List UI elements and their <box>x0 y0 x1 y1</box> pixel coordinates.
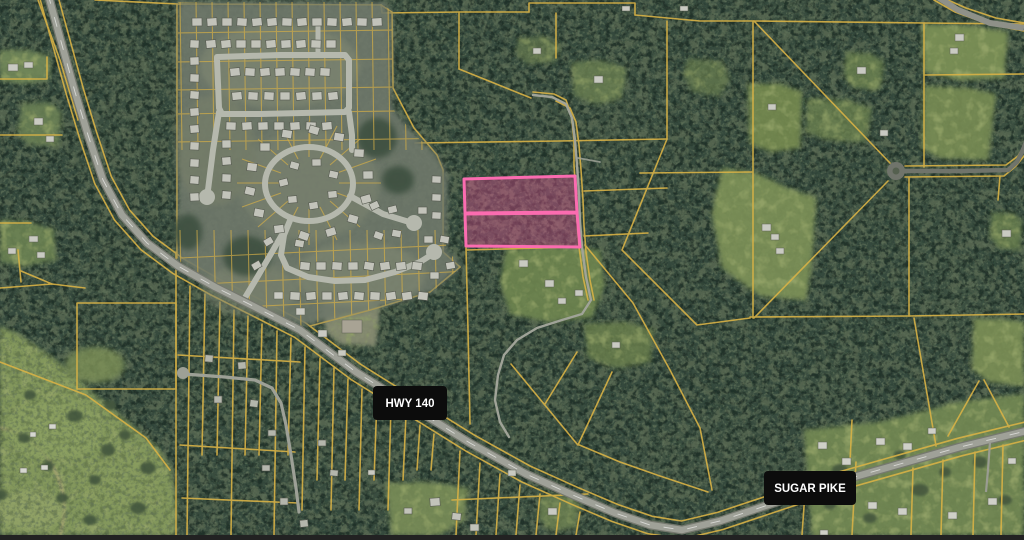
svg-text:HWY 140: HWY 140 <box>385 398 434 410</box>
svg-text:SUGAR PIKE: SUGAR PIKE <box>774 483 846 495</box>
